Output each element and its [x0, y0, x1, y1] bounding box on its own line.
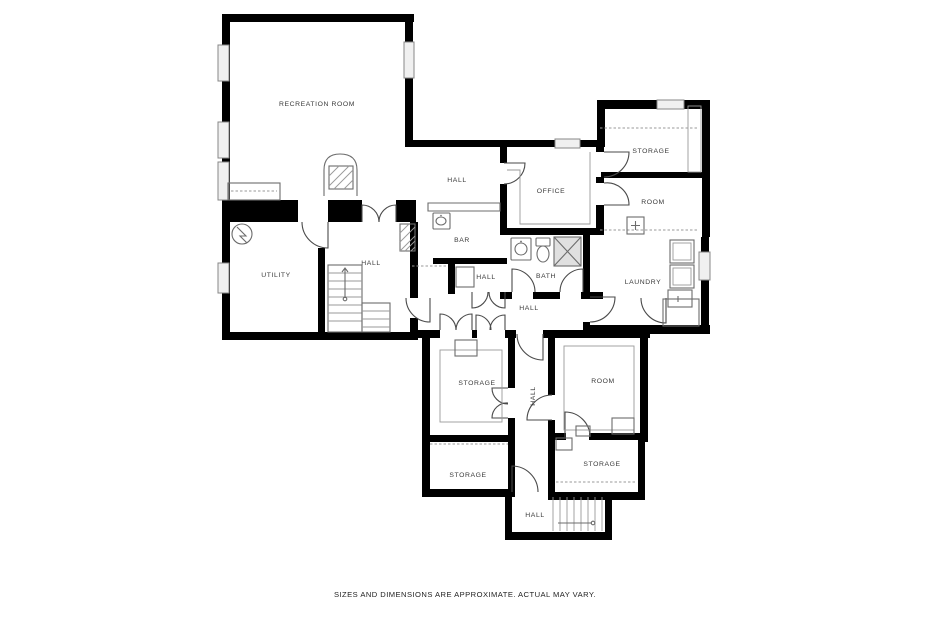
door-arc-icon: [472, 292, 488, 308]
room-label-bath: BATH: [536, 273, 556, 280]
room-ne-opening: [600, 217, 698, 234]
room-label-room-br: ROOM: [591, 378, 615, 385]
room-label-hall-entry: HALL: [525, 512, 544, 519]
hall-closet-box: [412, 266, 474, 287]
room-label-utility: UTILITY: [261, 272, 291, 279]
stairs-main: [328, 265, 390, 332]
door-arc-icon: [379, 205, 396, 222]
door-arc-icon: [560, 269, 583, 292]
dryer-icon: [670, 265, 694, 288]
room-label-laundry: LAUNDRY: [625, 279, 662, 286]
room-label-storage-ne: STORAGE: [632, 148, 669, 155]
room-label-hall-main: HALL: [519, 305, 538, 312]
window-icon: [218, 45, 229, 81]
room-label-hall-vertical: HALL: [530, 386, 537, 405]
room-label-storage-se: STORAGE: [583, 461, 620, 468]
door-arc-icon: [512, 269, 535, 292]
door-arc-icon: [604, 183, 629, 205]
storage-ne-shelves: [600, 106, 701, 172]
room-label-hall-upper: HALL: [447, 177, 466, 184]
bar-counter: [428, 203, 500, 229]
door-arc-icon: [504, 163, 525, 184]
room-label-storage-bl: STORAGE: [449, 472, 486, 479]
bath-sink-icon: [511, 238, 531, 260]
door-arc-icon: [590, 297, 615, 322]
disclaimer-text: SIZES AND DIMENSIONS ARE APPROXIMATE. AC…: [334, 590, 596, 599]
floor-plan-canvas: RECREATION ROOM HALL OFFICE STORAGE ROOM…: [0, 0, 930, 620]
door-arc-icon: [490, 315, 505, 330]
room-br-finish-line: [564, 346, 634, 436]
room-label-hall-stairs: HALL: [361, 260, 380, 267]
window-icon: [657, 100, 684, 109]
window-icon: [218, 263, 229, 293]
door-arc-icon: [440, 314, 456, 330]
room-label-room-ne: ROOM: [641, 199, 665, 206]
room-label-recreation-room: RECREATION ROOM: [279, 101, 355, 108]
door-arc-icon: [302, 222, 328, 248]
walls: [222, 14, 710, 540]
windows: [218, 42, 710, 293]
shower-icon: [554, 237, 581, 266]
window-icon: [218, 162, 229, 200]
door-arc-icon: [517, 334, 543, 360]
door-arc-icon: [512, 466, 538, 492]
stairs-entry: [553, 497, 602, 531]
door-arc-icon: [641, 298, 666, 323]
floor-plan-page: RECREATION ROOM HALL OFFICE STORAGE ROOM…: [0, 0, 930, 620]
window-icon: [404, 42, 414, 78]
toilet-icon: [536, 238, 550, 262]
room-label-office: OFFICE: [537, 188, 566, 195]
recreation-counter: [228, 183, 280, 200]
door-arc-icon: [492, 388, 508, 404]
door-arc-icon: [565, 412, 590, 437]
door-arc-icon: [492, 403, 508, 418]
door-arc-icon: [456, 314, 472, 330]
window-icon: [699, 252, 710, 280]
door-arc-icon: [406, 298, 430, 322]
storage-se-shelf: [556, 438, 636, 482]
window-icon: [218, 122, 229, 158]
washer-icon: [670, 240, 694, 263]
room-label-storage-ml: STORAGE: [458, 380, 495, 387]
room-label-bar: BAR: [454, 237, 470, 244]
room-label-hall-closet: HALL: [476, 274, 495, 281]
water-heater-icon: [232, 224, 252, 244]
fireplace-icon: [324, 154, 357, 196]
door-arc-icon: [476, 315, 491, 330]
door-arc-icon: [362, 205, 379, 222]
window-icon: [555, 139, 580, 148]
